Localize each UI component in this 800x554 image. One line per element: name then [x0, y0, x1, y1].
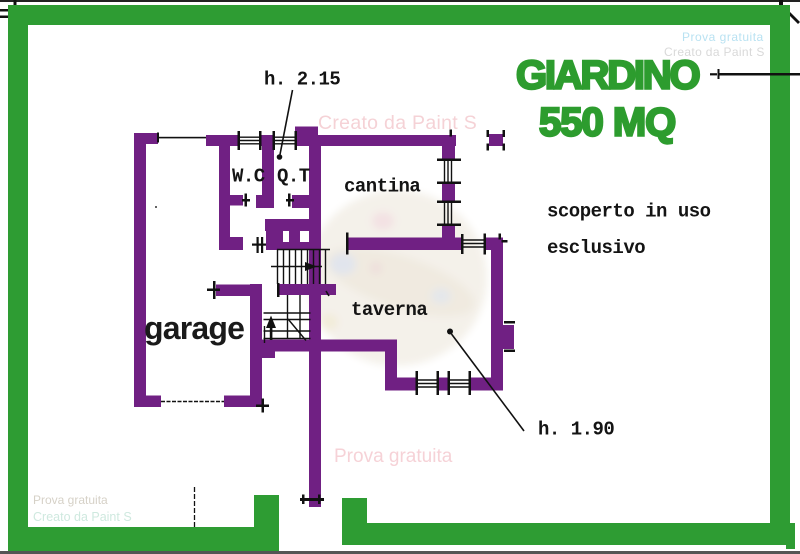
svg-text:cantina: cantina	[344, 176, 420, 198]
svg-text:scoperto in uso: scoperto in uso	[547, 201, 711, 223]
svg-text:Creato da Paint S: Creato da Paint S	[318, 112, 477, 134]
svg-text:GIARDINO: GIARDINO	[516, 54, 699, 98]
svg-text:garage: garage	[144, 310, 244, 346]
svg-text:550 MQ: 550 MQ	[539, 101, 675, 145]
svg-text:h. 1.90: h. 1.90	[538, 419, 614, 441]
svg-text:h. 2.15: h. 2.15	[264, 69, 340, 91]
svg-text:W.C: W.C	[232, 166, 265, 188]
svg-text:Prova gratuita: Prova gratuita	[334, 446, 453, 467]
svg-text:taverna: taverna	[351, 299, 427, 321]
svg-text:Q.T: Q.T	[277, 166, 310, 188]
svg-text:Prova gratuita: Prova gratuita	[33, 493, 108, 507]
svg-text:Prova gratuita: Prova gratuita	[682, 30, 764, 44]
svg-text:esclusivo: esclusivo	[547, 237, 645, 259]
svg-text:Creato da Paint S: Creato da Paint S	[33, 510, 132, 524]
